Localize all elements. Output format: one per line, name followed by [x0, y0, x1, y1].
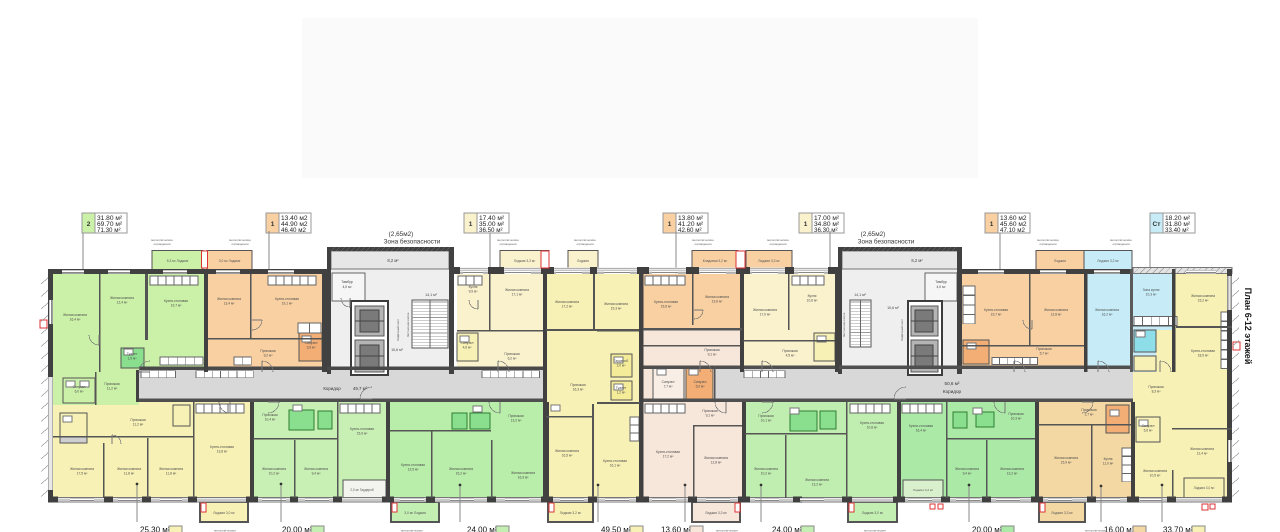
svg-text:Жилая комната: Жилая комната	[117, 467, 141, 471]
svg-text:металлические: металлические	[214, 529, 236, 532]
svg-text:10,8 м²: 10,8 м²	[867, 426, 879, 430]
svg-text:49.50 м²: 49.50 м²	[601, 526, 632, 532]
svg-text:11,8 м²: 11,8 м²	[166, 472, 177, 476]
svg-text:8,3 м²: 8,3 м²	[1152, 390, 1162, 394]
svg-text:Жилая комната: Жилая комната	[704, 456, 728, 460]
svg-text:Лестничная клетка: Лестничная клетка	[406, 312, 410, 337]
svg-text:ограждения: ограждения	[1113, 242, 1130, 246]
svg-text:10,3 м²: 10,3 м²	[1011, 417, 1023, 421]
svg-text:19,7 м²: 19,7 м²	[171, 304, 183, 308]
svg-text:13,2 м²: 13,2 м²	[1007, 472, 1019, 476]
svg-text:Прихожая: Прихожая	[508, 414, 523, 418]
svg-text:14,1 м²: 14,1 м²	[854, 293, 866, 297]
svg-text:Жилая комната: Жилая комната	[262, 467, 286, 471]
svg-text:10,4 м²: 10,4 м²	[265, 418, 277, 422]
svg-text:11,8 м²: 11,8 м²	[124, 472, 135, 476]
svg-text:Зона безопасности: Зона безопасности	[858, 238, 915, 246]
svg-text:2: 2	[87, 221, 91, 228]
svg-text:4,5 м²: 4,5 м²	[786, 354, 796, 358]
svg-text:Лестничная клетка: Лестничная клетка	[842, 312, 846, 337]
svg-text:(2,65м2): (2,65м2)	[389, 231, 414, 238]
svg-text:20.00 м²: 20.00 м²	[972, 526, 1003, 532]
svg-text:10,6 м²: 10,6 м²	[391, 348, 403, 352]
svg-text:Кухня: Кухня	[1104, 457, 1113, 461]
svg-text:1: 1	[469, 221, 473, 228]
svg-text:Тамбур: Тамбур	[935, 280, 947, 284]
svg-text:Зона кухни: Зона кухни	[1143, 288, 1160, 292]
svg-text:Кухня-столовая: Кухня-столовая	[909, 424, 933, 428]
svg-text:Кладовая 3,2 м²: Кладовая 3,2 м²	[703, 259, 728, 263]
svg-text:13,8 м²: 13,8 м²	[217, 450, 229, 454]
svg-text:16,5 м²: 16,5 м²	[562, 454, 574, 458]
svg-text:Лифтовый холл: Лифтовый холл	[396, 319, 400, 341]
svg-text:Кухня-столовая: Кухня-столовая	[984, 308, 1008, 312]
svg-text:4,6 м²: 4,6 м²	[463, 346, 473, 350]
svg-text:9,9 м²: 9,9 м²	[469, 290, 479, 294]
svg-text:Кухня-столовая: Кухня-столовая	[603, 459, 627, 463]
svg-text:Лоджия 3,0 м²: Лоджия 3,0 м²	[1194, 486, 1215, 490]
svg-text:24.00 м²: 24.00 м²	[467, 526, 498, 532]
svg-text:Жилая комната: Жилая комната	[1095, 308, 1119, 312]
svg-text:Жилая комната: Жилая комната	[754, 467, 778, 471]
svg-text:металлические: металлические	[864, 529, 886, 532]
svg-text:6,2 м²: 6,2 м²	[508, 357, 518, 361]
svg-text:Жилая комната: Жилая комната	[110, 296, 134, 300]
svg-text:Жилая комната: Жилая комната	[63, 313, 87, 317]
svg-text:Кухня-столовая: Кухня-столовая	[210, 445, 234, 449]
svg-text:2,0 м² Гардероб: 2,0 м² Гардероб	[350, 488, 374, 492]
svg-text:10,3 м²: 10,3 м²	[1146, 293, 1158, 297]
svg-text:Коридор: Коридор	[323, 386, 341, 391]
svg-text:Жилая комната: Жилая комната	[511, 471, 535, 475]
svg-text:Санузел: Санузел	[461, 341, 474, 345]
svg-text:Жилая комната: Жилая комната	[555, 449, 579, 453]
svg-text:8,2 м²: 8,2 м²	[387, 258, 399, 263]
svg-text:16,2 м²: 16,2 м²	[456, 472, 468, 476]
svg-text:Прихожая: Прихожая	[782, 349, 797, 353]
svg-text:1,2 м²: 1,2 м²	[617, 391, 627, 395]
svg-text:1: 1	[804, 221, 808, 228]
svg-text:16,2 м²: 16,2 м²	[1102, 313, 1114, 317]
svg-text:(2,65м2): (2,65м2)	[861, 231, 886, 238]
svg-text:Лоджия 3,3 м²: Лоджия 3,3 м²	[1051, 511, 1073, 515]
svg-text:10,6 м²: 10,6 м²	[807, 299, 819, 303]
svg-text:Жилая комната: Жилая комната	[1143, 469, 1167, 473]
svg-text:Прихожая: Прихожая	[1081, 408, 1096, 412]
svg-text:Жилая комната: Жилая комната	[505, 288, 529, 292]
svg-text:24.00 м²: 24.00 м²	[772, 526, 803, 532]
svg-text:8,2 м²: 8,2 м²	[911, 258, 923, 263]
svg-text:Кухня: Кухня	[469, 285, 478, 289]
svg-text:Зона безопасности: Зона безопасности	[384, 238, 441, 246]
svg-text:18,5 м²: 18,5 м²	[1198, 354, 1210, 358]
svg-text:1: 1	[990, 221, 994, 228]
svg-text:Прихожая: Прихожая	[130, 418, 145, 422]
svg-text:7,7 м²: 7,7 м²	[664, 385, 674, 389]
svg-text:Прихожая: Прихожая	[704, 348, 719, 352]
svg-text:13,2 м²: 13,2 м²	[812, 483, 824, 487]
svg-text:Прихожая: Прихожая	[262, 413, 277, 417]
svg-text:19,7 м²: 19,7 м²	[991, 313, 1003, 317]
svg-text:ограждения: ограждения	[577, 242, 594, 246]
svg-text:10,2 м²: 10,2 м²	[761, 472, 773, 476]
svg-text:Жилая комната: Жилая комната	[304, 467, 328, 471]
svg-text:36.50 м²: 36.50 м²	[479, 227, 503, 234]
svg-text:Лоджия 3,2 м²: Лоджия 3,2 м²	[1097, 259, 1119, 263]
svg-text:Жилая комната: Жилая комната	[1044, 308, 1068, 312]
svg-text:2,0 м²: 2,0 м²	[617, 364, 627, 368]
svg-text:9,4 м²: 9,4 м²	[312, 472, 322, 476]
svg-text:16.00 м2: 16.00 м2	[1104, 526, 1137, 532]
svg-text:9,1 м²: 9,1 м²	[706, 414, 716, 418]
svg-text:13,6 м²: 13,6 м²	[712, 300, 724, 304]
svg-text:11,2 м²: 11,2 м²	[133, 423, 144, 427]
svg-text:Кухня-столовая: Кухня-столовая	[654, 300, 678, 304]
svg-text:15,6 м²: 15,6 м²	[661, 305, 673, 309]
svg-text:Жилая комната: Жилая комната	[159, 467, 183, 471]
svg-text:16,3 м²: 16,3 м²	[573, 388, 585, 392]
svg-text:Жилая комната: Жилая комната	[753, 308, 777, 312]
svg-text:17,2 м²: 17,2 м²	[663, 455, 675, 459]
svg-text:10,2 м²: 10,2 м²	[269, 472, 281, 476]
svg-text:Жилая комната: Жилая комната	[604, 302, 628, 306]
svg-text:Жилая комната: Жилая комната	[1190, 447, 1214, 451]
svg-text:ограждения: ограждения	[695, 242, 712, 246]
svg-text:Ст: Ст	[1153, 221, 1161, 228]
svg-text:5,6 м²: 5,6 м²	[1144, 429, 1154, 433]
svg-text:Кухня-столовая: Кухня-столовая	[350, 427, 374, 431]
svg-text:Туалет: Туалет	[616, 386, 627, 390]
svg-text:17,1 м²: 17,1 м²	[512, 293, 524, 297]
svg-text:Туалет: Туалет	[127, 352, 138, 356]
svg-text:5,7 м²: 5,7 м²	[1040, 352, 1050, 356]
svg-text:3,0 м² Лоджия: 3,0 м² Лоджия	[219, 259, 241, 263]
svg-text:33.40 м²: 33.40 м²	[1165, 227, 1189, 234]
svg-text:Жилая комната: Жилая комната	[555, 300, 579, 304]
svg-text:46.40 м2: 46.40 м2	[281, 227, 306, 234]
svg-text:Санузел: Санузел	[73, 385, 86, 389]
svg-text:Лоджия 3,0 м²: Лоджия 3,0 м²	[213, 511, 235, 515]
svg-text:15,9 м²: 15,9 м²	[357, 432, 369, 436]
svg-text:12,4 м²: 12,4 м²	[117, 301, 129, 305]
svg-text:Прихожая: Прихожая	[1036, 347, 1051, 351]
svg-text:12,4 м²: 12,4 м²	[1197, 452, 1209, 456]
svg-text:9,1 м²: 9,1 м²	[708, 353, 718, 357]
svg-text:6,0 м²: 6,0 м²	[75, 390, 85, 394]
svg-text:ограждения: ограждения	[500, 242, 517, 246]
svg-text:Кухня-столовая: Кухня-столовая	[401, 463, 425, 467]
svg-text:Жилая комната: Жилая комната	[1054, 456, 1078, 460]
svg-text:14,1 м²: 14,1 м²	[425, 293, 437, 297]
svg-text:20.00 м²: 20.00 м²	[282, 526, 313, 532]
svg-text:17,5 м²: 17,5 м²	[77, 472, 89, 476]
svg-text:Прихожая: Прихожая	[1148, 385, 1163, 389]
svg-text:Лоджия 3,0 м²: Лоджия 3,0 м²	[862, 511, 884, 515]
svg-text:9,2 м²: 9,2 м²	[264, 354, 274, 358]
svg-text:13,4 м²: 13,4 м²	[224, 302, 236, 306]
svg-text:12,8 м²: 12,8 м²	[711, 461, 723, 465]
svg-text:13.60 м²: 13.60 м²	[661, 526, 692, 532]
svg-text:Кухня-столовая: Кухня-столовая	[275, 297, 299, 301]
svg-text:Прихожая: Прихожая	[1008, 412, 1023, 416]
svg-text:25.30 м²: 25.30 м²	[140, 526, 171, 532]
svg-text:9,4 м²: 9,4 м²	[963, 472, 973, 476]
svg-text:Лоджия: Лоджия	[1054, 259, 1066, 263]
svg-text:19,1 м²: 19,1 м²	[282, 302, 294, 306]
svg-text:17,0 м²: 17,0 м²	[760, 313, 772, 317]
svg-text:Санузел: Санузел	[694, 380, 707, 384]
svg-text:Прихожая: Прихожая	[504, 352, 519, 356]
svg-text:12,8 м²: 12,8 м²	[1051, 313, 1063, 317]
svg-text:Жилая комната: Жилая комната	[1000, 467, 1024, 471]
svg-text:Жилая комната: Жилая комната	[217, 297, 241, 301]
svg-text:3,9 м²: 3,9 м²	[307, 346, 317, 350]
svg-text:1,9 м²: 1,9 м²	[128, 357, 138, 361]
svg-text:16,4 м²: 16,4 м²	[916, 429, 928, 433]
svg-text:71.30 м²: 71.30 м²	[97, 227, 121, 234]
svg-text:13,2 м²: 13,2 м²	[511, 419, 523, 423]
svg-text:Кухня-столовая: Кухня-столовая	[164, 299, 188, 303]
svg-text:3,0 м² Лоджия: 3,0 м² Лоджия	[404, 511, 426, 515]
svg-text:5,0 м²: 5,0 м²	[696, 385, 706, 389]
svg-text:15,9 м²: 15,9 м²	[1061, 461, 1073, 465]
svg-text:Коридор: Коридор	[943, 389, 962, 394]
svg-text:42.60 м²: 42.60 м²	[678, 227, 702, 234]
svg-text:13,5 м²: 13,5 м²	[408, 468, 420, 472]
svg-text:ограждения: ограждения	[154, 242, 171, 246]
svg-text:16,4 м²: 16,4 м²	[70, 318, 82, 322]
svg-text:металлические: металлические	[1085, 529, 1107, 532]
svg-text:1: 1	[668, 221, 672, 228]
svg-text:Лоджия 3,2 м²: Лоджия 3,2 м²	[913, 488, 933, 492]
svg-text:36.30 м²: 36.30 м²	[814, 227, 838, 234]
svg-text:Жилая комната: Жилая комната	[70, 467, 94, 471]
svg-text:Лоджия 3,3 м²: Лоджия 3,3 м²	[758, 259, 780, 263]
svg-text:10,5 м²: 10,5 м²	[1150, 474, 1162, 478]
svg-text:Прихожая: Прихожая	[570, 383, 585, 387]
svg-text:Лоджия: Лоджия	[577, 259, 589, 263]
svg-text:Кухня-столовая: Кухня-столовая	[656, 450, 680, 454]
svg-text:Лоджия 3,3 м²: Лоджия 3,3 м²	[705, 511, 727, 515]
svg-text:4,0 м²: 4,0 м²	[936, 285, 946, 289]
svg-text:1: 1	[271, 221, 275, 228]
svg-text:49,7 м²: 49,7 м²	[353, 386, 368, 391]
svg-text:ограждения: ограждения	[770, 242, 787, 246]
svg-text:16,1 м²: 16,1 м²	[610, 464, 622, 468]
svg-text:16,9 м²: 16,9 м²	[518, 476, 530, 480]
svg-text:15,2 м²: 15,2 м²	[1198, 299, 1210, 303]
svg-text:4,0 м²: 4,0 м²	[342, 285, 352, 289]
svg-text:Тамбур: Тамбур	[341, 280, 353, 284]
svg-text:Жилая комната: Жилая комната	[805, 478, 829, 482]
svg-text:План 6-12 этажей: План 6-12 этажей	[1243, 288, 1253, 365]
svg-text:ограждения: ограждения	[1040, 242, 1057, 246]
svg-text:10,6 м²: 10,6 м²	[887, 306, 899, 310]
svg-text:11,2 м²: 11,2 м²	[107, 387, 118, 391]
svg-text:5,3 м² Лоджия: 5,3 м² Лоджия	[167, 259, 189, 263]
svg-text:Кухня: Кухня	[808, 294, 817, 298]
svg-text:15,3 м²: 15,3 м²	[611, 307, 623, 311]
svg-text:Прихожая: Прихожая	[758, 414, 773, 418]
svg-text:2,7 м²: 2,7 м²	[1085, 413, 1095, 417]
svg-text:10,1 м²: 10,1 м²	[761, 419, 773, 423]
svg-text:Лоджия 3,3 м²: Лоджия 3,3 м²	[514, 259, 536, 263]
svg-text:50,6 м²: 50,6 м²	[945, 381, 960, 386]
svg-text:металлические: металлические	[716, 529, 738, 532]
svg-text:Санузел: Санузел	[1142, 424, 1155, 428]
svg-text:Прихожая: Прихожая	[702, 409, 717, 413]
svg-text:17,2 м²: 17,2 м²	[562, 305, 574, 309]
svg-text:Жилая комната: Жилая комната	[955, 467, 979, 471]
svg-text:47.10 м2: 47.10 м2	[1000, 227, 1025, 234]
svg-text:Кухня-столовая: Кухня-столовая	[1191, 349, 1215, 353]
svg-text:11,0 м²: 11,0 м²	[1103, 462, 1114, 466]
svg-text:Жилая комната: Жилая комната	[1191, 294, 1215, 298]
svg-text:Санузел: Санузел	[305, 341, 318, 345]
svg-text:Жилая комната: Жилая комната	[449, 467, 473, 471]
svg-text:Кухня-столовая: Кухня-столовая	[860, 421, 884, 425]
svg-text:Санузел: Санузел	[662, 380, 675, 384]
svg-text:Лоджия 3,2 м²: Лоджия 3,2 м²	[560, 511, 582, 515]
svg-text:ограждения: ограждения	[232, 242, 249, 246]
svg-text:Прихожая: Прихожая	[104, 382, 119, 386]
svg-text:Лифтовый холл: Лифтовый холл	[900, 319, 904, 341]
svg-text:металлические: металлические	[401, 529, 423, 532]
svg-text:33.70 м²: 33.70 м²	[1163, 526, 1194, 532]
svg-text:Прихожая: Прихожая	[260, 349, 275, 353]
svg-text:Жилая комната: Жилая комната	[705, 295, 729, 299]
svg-text:Гардероб: Гардероб	[614, 359, 629, 363]
